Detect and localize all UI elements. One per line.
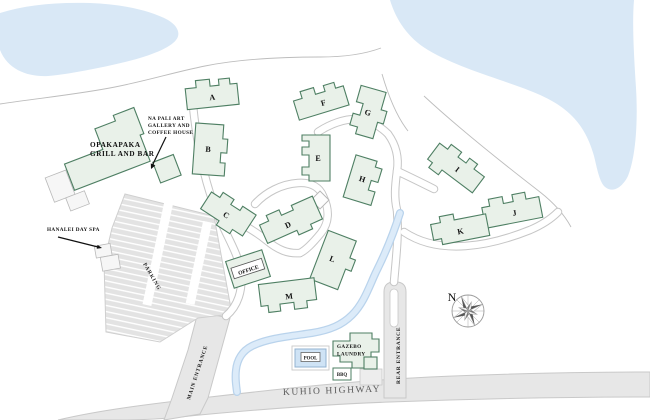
laundry-pad	[360, 369, 382, 385]
building-a-label: A	[209, 93, 216, 103]
building-m-label: M	[285, 291, 294, 301]
gallery-label-line2: GALLERY AND	[148, 123, 190, 129]
laundry-label: LAUNDRY	[337, 352, 366, 358]
building-b-group: B	[192, 123, 228, 176]
gallery-label-line1: NA PALI ART	[148, 116, 185, 122]
building-e-label: E	[315, 154, 320, 163]
compass-north-label: N	[448, 290, 457, 304]
gazebo-label: GAZEBO	[337, 344, 362, 350]
site-map-canvas: OPAKAPAKA GRILL AND BAR NA PALI ART GALL…	[0, 0, 650, 420]
pool-group: POOL	[292, 346, 329, 370]
gazebo-annex	[364, 357, 377, 369]
rear-entrance-label: REAR ENTRANCE	[396, 327, 402, 384]
grill-label-line2: GRILL AND BAR	[90, 150, 155, 158]
resort-site-map: OPAKAPAKA GRILL AND BAR NA PALI ART GALL…	[0, 0, 650, 420]
grill-label-line1: OPAKAPAKA	[90, 141, 141, 149]
spa-label: HANALEI DAY SPA	[47, 227, 100, 233]
pool-label: POOL	[304, 356, 318, 361]
bbq-label: BBQ	[337, 373, 347, 378]
gallery-label-line3: COFFEE HOUSE	[148, 130, 193, 136]
rear-entrance-median	[390, 289, 398, 327]
